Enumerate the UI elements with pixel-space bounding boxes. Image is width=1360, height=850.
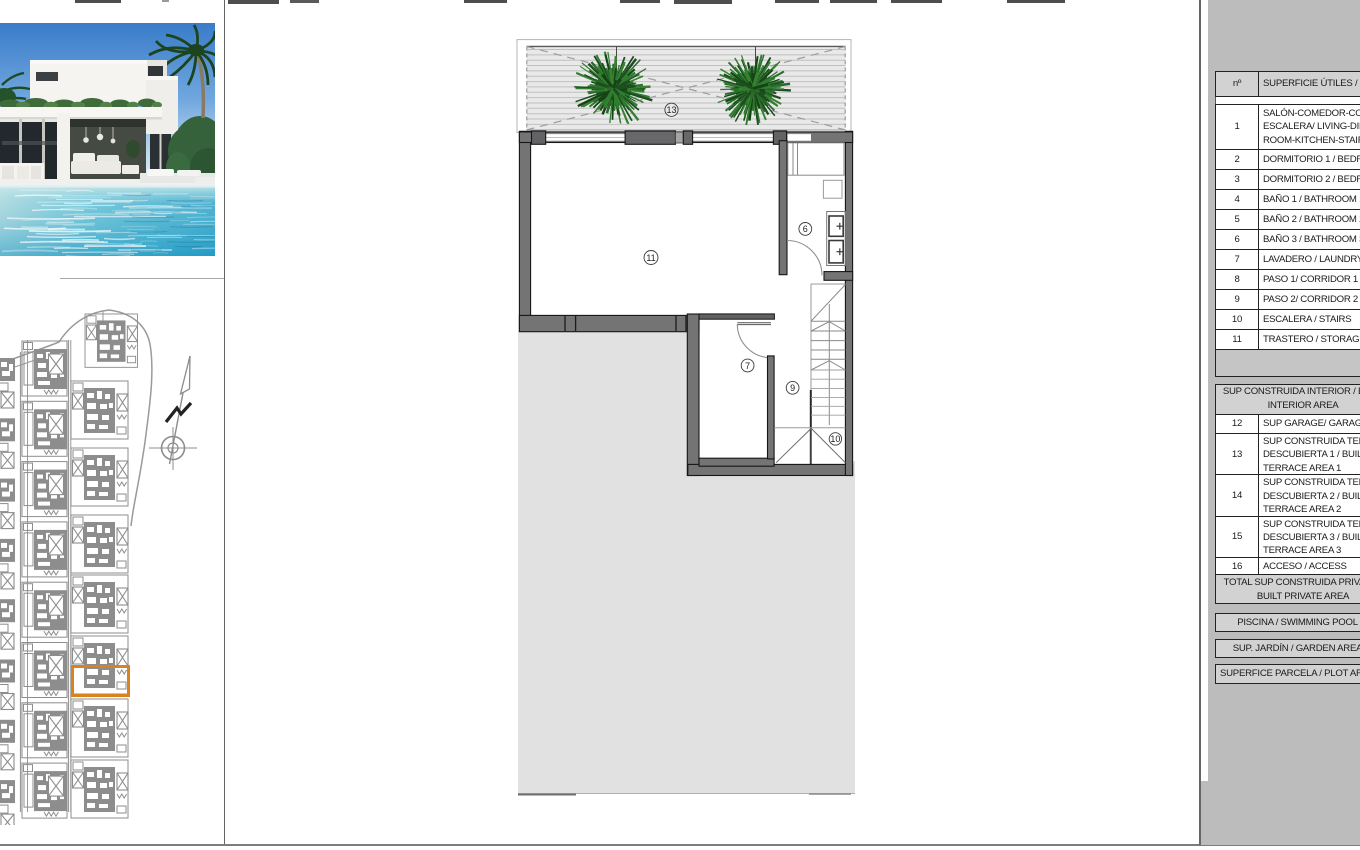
svg-text:7: 7: [745, 361, 750, 371]
svg-text:13: 13: [666, 105, 676, 115]
svg-text:6: 6: [803, 224, 808, 234]
svg-text:10: 10: [830, 434, 840, 444]
svg-text:11: 11: [646, 253, 655, 263]
svg-text:9: 9: [790, 383, 795, 393]
